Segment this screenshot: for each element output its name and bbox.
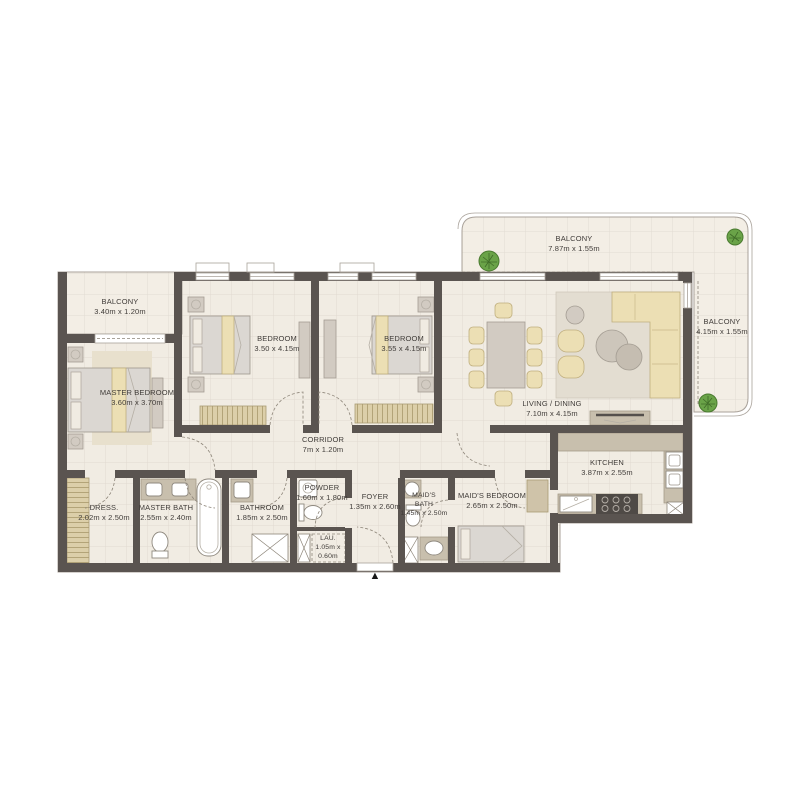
bedroom1-wardrobe xyxy=(200,406,266,425)
maids-wardrobe xyxy=(527,480,548,512)
room-name: MASTER BEDROOM xyxy=(100,388,174,398)
room-dims: 2.65m x 2.50m xyxy=(458,501,526,511)
room-name: DRESS. xyxy=(78,503,130,513)
bedroom1-tv-unit xyxy=(299,322,310,378)
room-label-balcony-top: BALCONY 7.87m x 1.55m xyxy=(548,234,600,254)
room-label-bedroom-1: BEDROOM 3.50 x 4.15m xyxy=(254,334,299,354)
room-dims: 7m x 1.20m xyxy=(302,445,344,455)
room-label-maids-bedroom: MAID'S BEDROOM 2.65m x 2.50m xyxy=(458,491,526,511)
room-name: BATH xyxy=(401,501,448,510)
room-dims: 7.87m x 1.55m xyxy=(548,244,600,254)
master-bath-toilet xyxy=(152,532,168,558)
room-label-laundry: LAU. 1.05m x 0.60m xyxy=(315,535,340,561)
plant xyxy=(727,229,743,245)
room-label-corridor: CORRIDOR 7m x 1.20m xyxy=(302,435,344,455)
room-dims: 1.05m x xyxy=(315,544,340,553)
balcony-sliding-door xyxy=(95,334,165,343)
room-name: BALCONY xyxy=(696,317,748,327)
room-name: LAU. xyxy=(315,535,340,544)
room-name: CORRIDOR xyxy=(302,435,344,445)
stove xyxy=(596,494,638,514)
room-dims: 3.87m x 2.55m xyxy=(581,468,633,478)
room-label-foyer: FOYER 1.35m x 2.60m xyxy=(349,492,401,512)
bathtub xyxy=(197,479,221,556)
room-label-maids-bath: MAID'S BATH 1.45m x 2.50m xyxy=(401,492,448,518)
room-label-bathroom: BATHROOM 1.85m x 2.50m xyxy=(236,503,288,523)
coffee-table xyxy=(616,344,642,370)
bedroom1-bed xyxy=(190,316,250,374)
room-dims: 2.55m x 2.40m xyxy=(139,513,193,523)
room-name: LIVING / DINING xyxy=(522,399,581,409)
room-dims: 1.85m x 2.50m xyxy=(236,513,288,523)
tv-console xyxy=(590,411,650,425)
side-table xyxy=(566,306,584,324)
room-name: MASTER BATH xyxy=(139,503,193,513)
room-label-dress: DRESS. 2.02m x 2.50m xyxy=(78,503,130,523)
room-name: BALCONY xyxy=(548,234,600,244)
room-label-kitchen: KITCHEN 3.87m x 2.55m xyxy=(581,458,633,478)
room-dims: 0.60m xyxy=(315,553,340,562)
room-dims: 2.02m x 2.50m xyxy=(78,513,130,523)
room-name: MAID'S xyxy=(401,492,448,501)
armchair xyxy=(558,356,584,378)
room-dims: 3.55 x 4.15m xyxy=(381,344,426,354)
floorplan-page: BALCONY 3.40m x 1.20m BALCONY 7.87m x 1.… xyxy=(0,0,800,800)
room-label-balcony-right: BALCONY 4.15m x 1.55m xyxy=(696,317,748,337)
plant xyxy=(699,394,717,412)
room-label-living-dining: LIVING / DINING 7.10m x 4.15m xyxy=(522,399,581,419)
bathroom-vanity xyxy=(231,479,253,502)
room-label-master-bedroom: MASTER BEDROOM 3.60m x 3.70m xyxy=(100,388,174,408)
room-dims: 4.15m x 1.55m xyxy=(696,327,748,337)
room-label-bedroom-2: BEDROOM 3.55 x 4.15m xyxy=(381,334,426,354)
room-name: POWDER xyxy=(296,483,348,493)
plant xyxy=(479,251,499,271)
room-name: BEDROOM xyxy=(381,334,426,344)
room-label-powder: POWDER 1.60m x 1.80m xyxy=(296,483,348,503)
armchair xyxy=(558,330,584,352)
room-dims: 1.35m x 2.60m xyxy=(349,502,401,512)
maids-bed xyxy=(458,526,524,562)
room-name: MAID'S BEDROOM xyxy=(458,491,526,501)
entrance-arrow-icon: ▲ xyxy=(370,571,381,582)
room-dims: 3.40m x 1.20m xyxy=(94,307,146,317)
bedroom2-dresser xyxy=(324,320,336,378)
room-name: BALCONY xyxy=(94,297,146,307)
room-dims: 3.50 x 4.15m xyxy=(254,344,299,354)
kitchen-sink xyxy=(560,496,592,512)
room-name: KITCHEN xyxy=(581,458,633,468)
room-dims: 3.60m x 3.70m xyxy=(100,398,174,408)
room-dims: 1.60m x 1.80m xyxy=(296,493,348,503)
room-name: BEDROOM xyxy=(254,334,299,344)
room-name: FOYER xyxy=(349,492,401,502)
room-dims: 7.10m x 4.15m xyxy=(522,409,581,419)
room-label-master-bath: MASTER BATH 2.55m x 2.40m xyxy=(139,503,193,523)
room-dims: 1.45m x 2.50m xyxy=(401,510,448,519)
bathroom-shower xyxy=(252,534,288,562)
room-label-balcony-left: BALCONY 3.40m x 1.20m xyxy=(94,297,146,317)
room-name: BATHROOM xyxy=(236,503,288,513)
bedroom2-wardrobe xyxy=(355,404,433,423)
